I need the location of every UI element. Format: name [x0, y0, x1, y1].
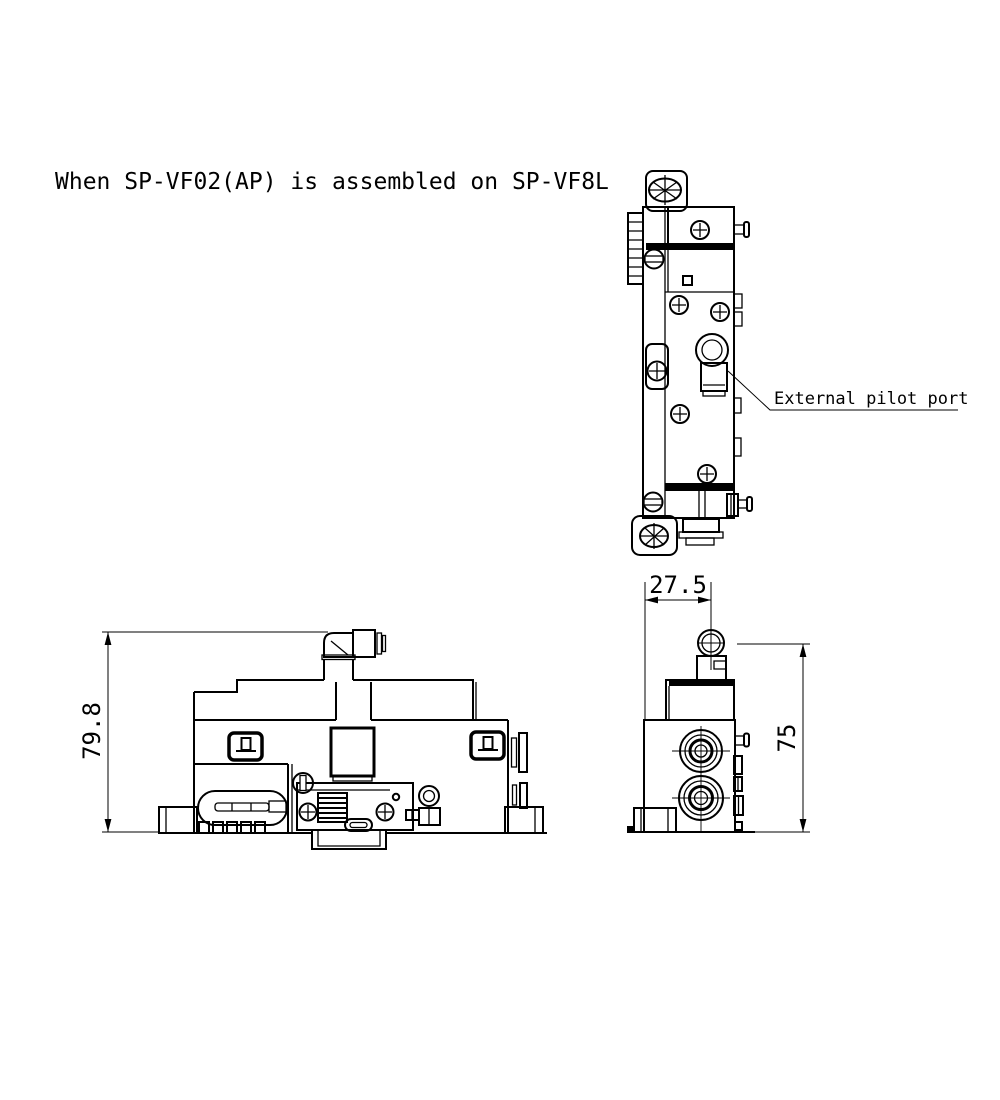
right-connector-tabs — [734, 398, 741, 456]
solenoid-block — [331, 728, 374, 781]
retaining-clip — [229, 733, 262, 760]
connector-tray — [312, 830, 386, 849]
front-view: 79.8 — [78, 630, 547, 849]
technical-drawing-page: When SP-VF02(AP) is assembled on SP-VF8L — [0, 0, 1000, 1100]
retaining-clip — [471, 732, 504, 759]
terminal-pins — [199, 822, 265, 833]
knurled-knob — [628, 213, 643, 284]
small-port-square — [683, 276, 692, 285]
side-width-dimension: 27.5 — [649, 571, 707, 599]
phillips-screw — [671, 405, 689, 423]
indicator-dot — [393, 794, 399, 800]
mounting-foot-side — [627, 808, 676, 833]
phillips-screw — [300, 804, 317, 821]
right-connector-tabs — [734, 294, 742, 326]
valve-top-block — [194, 680, 476, 833]
slotted-screw — [644, 493, 663, 512]
cad-drawing: When SP-VF02(AP) is assembled on SP-VF8L — [0, 0, 1000, 1100]
top-view — [628, 171, 752, 555]
front-height-dimension: 79.8 — [78, 702, 106, 760]
external-pilot-port-label: External pilot port — [774, 389, 968, 409]
bottom-fitting — [679, 519, 723, 545]
mounting-tab-top — [646, 171, 687, 211]
dimension-79-8: 79.8 — [78, 632, 328, 832]
mounting-foot-right — [505, 807, 543, 833]
gasket-band — [665, 483, 733, 491]
dimension-27-5: 27.5 — [645, 571, 711, 719]
side-plates — [512, 733, 528, 808]
port-centerlines — [672, 726, 730, 832]
phillips-screw — [698, 465, 716, 483]
manifold-body-side — [644, 720, 735, 832]
pilot-port-fitting — [696, 334, 728, 396]
mounting-foot-left — [159, 807, 197, 833]
mounting-tab-bottom — [632, 516, 677, 555]
side-view: 27.5 75 — [627, 571, 810, 833]
phillips-screw — [691, 221, 709, 239]
right-bolt — [727, 494, 752, 516]
side-fittings — [734, 734, 749, 831]
top-screw — [698, 628, 724, 658]
mounted-valve-unit — [293, 773, 440, 849]
valve-upper-block — [666, 680, 734, 720]
side-connector — [406, 808, 440, 825]
stem-lines — [699, 491, 705, 518]
phillips-screw — [377, 804, 394, 821]
side-height-dimension: 75 — [773, 724, 801, 753]
label-slot — [198, 791, 287, 825]
drawing-title: When SP-VF02(AP) is assembled on SP-VF8L — [55, 169, 609, 195]
elbow-fitting — [322, 630, 386, 680]
knurled-adjuster — [318, 793, 347, 822]
dimension-75: 75 — [737, 644, 810, 832]
phillips-screw — [670, 296, 688, 314]
slotted-screw — [645, 250, 664, 269]
side-stud — [734, 222, 749, 237]
phillips-screw — [711, 303, 729, 321]
pilot-ring-port — [419, 786, 439, 806]
coil-block — [646, 207, 734, 250]
external-pilot-port-callout: External pilot port — [728, 371, 968, 410]
